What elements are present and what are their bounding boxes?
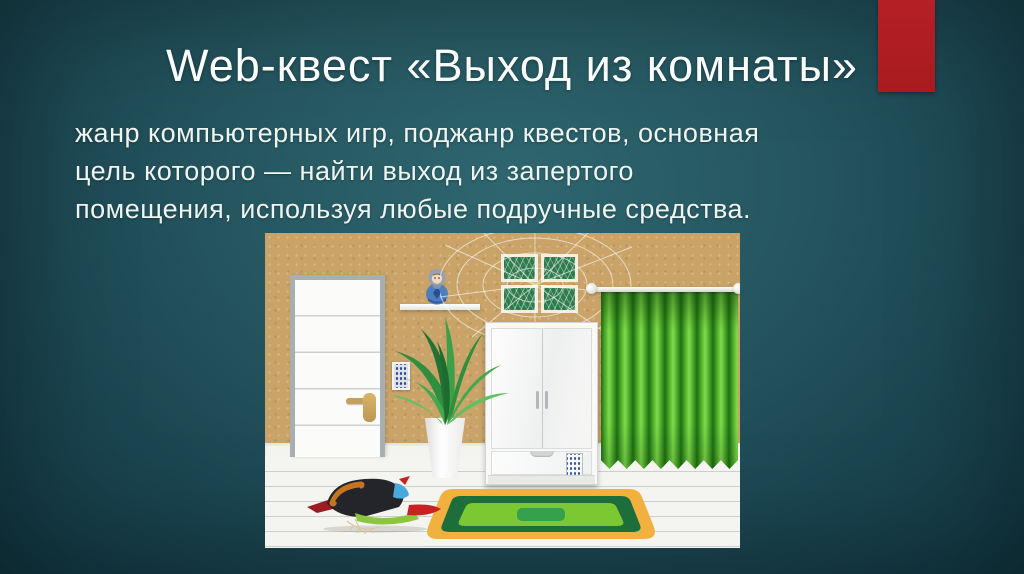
door-handle-plate bbox=[363, 393, 376, 422]
picture-frame bbox=[541, 254, 578, 282]
wardrobe-keypad-icon bbox=[566, 453, 583, 477]
body-line-3: помещения, используя любые подручные сре… bbox=[75, 190, 935, 228]
picture-frames bbox=[501, 254, 578, 313]
picture-frame bbox=[501, 254, 538, 282]
wardrobe-handle bbox=[536, 391, 539, 409]
wardrobe-handle bbox=[545, 391, 548, 409]
wardrobe-plinth bbox=[488, 475, 595, 484]
slide-title: Web-квест «Выход из комнаты» bbox=[0, 40, 1024, 92]
curtain bbox=[601, 291, 738, 469]
room-illustration bbox=[265, 233, 740, 548]
body-line-1: жанр компьютерных игр, поджанр квестов, … bbox=[75, 114, 935, 152]
palm-plant-icon bbox=[383, 309, 518, 429]
drawer-handle bbox=[530, 451, 554, 457]
door bbox=[290, 275, 385, 457]
curtain-rod bbox=[591, 287, 739, 292]
rug bbox=[425, 487, 657, 541]
wardrobe-door-split bbox=[542, 329, 543, 448]
curtain-finial bbox=[733, 283, 740, 294]
curtain-shade bbox=[601, 291, 738, 469]
presentation-slide: Web-квест «Выход из комнаты» жанр компью… bbox=[0, 0, 1024, 574]
curtain-finial bbox=[586, 283, 597, 294]
matryoshka-doll-icon bbox=[423, 267, 451, 305]
picture-frame bbox=[541, 285, 578, 313]
slide-body: жанр компьютерных игр, поджанр квестов, … bbox=[75, 114, 935, 228]
body-line-2: цель которого — найти выход из запертого bbox=[75, 152, 935, 190]
bird-icon bbox=[303, 473, 445, 535]
